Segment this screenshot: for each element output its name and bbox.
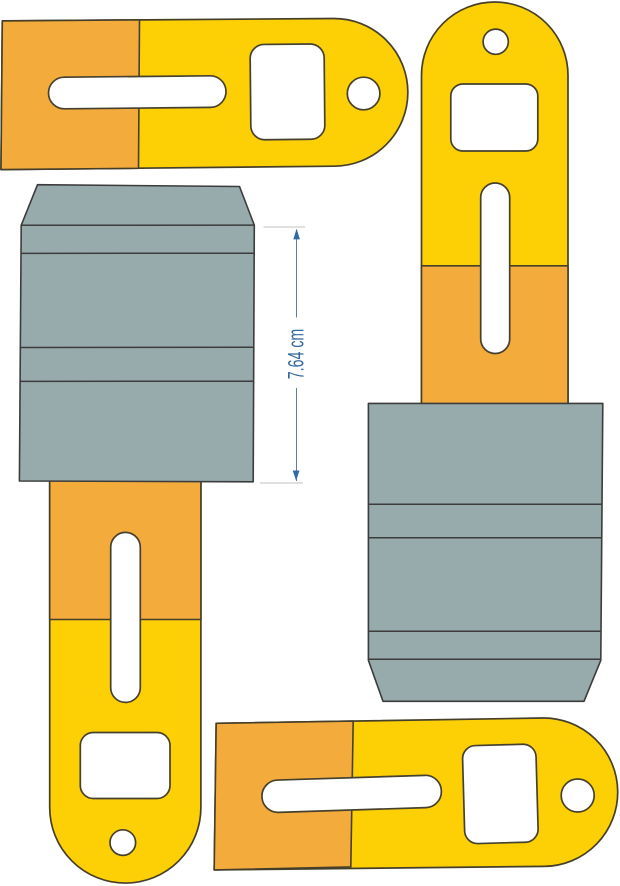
svg-text:7.64 cm: 7.64 cm — [283, 329, 308, 379]
